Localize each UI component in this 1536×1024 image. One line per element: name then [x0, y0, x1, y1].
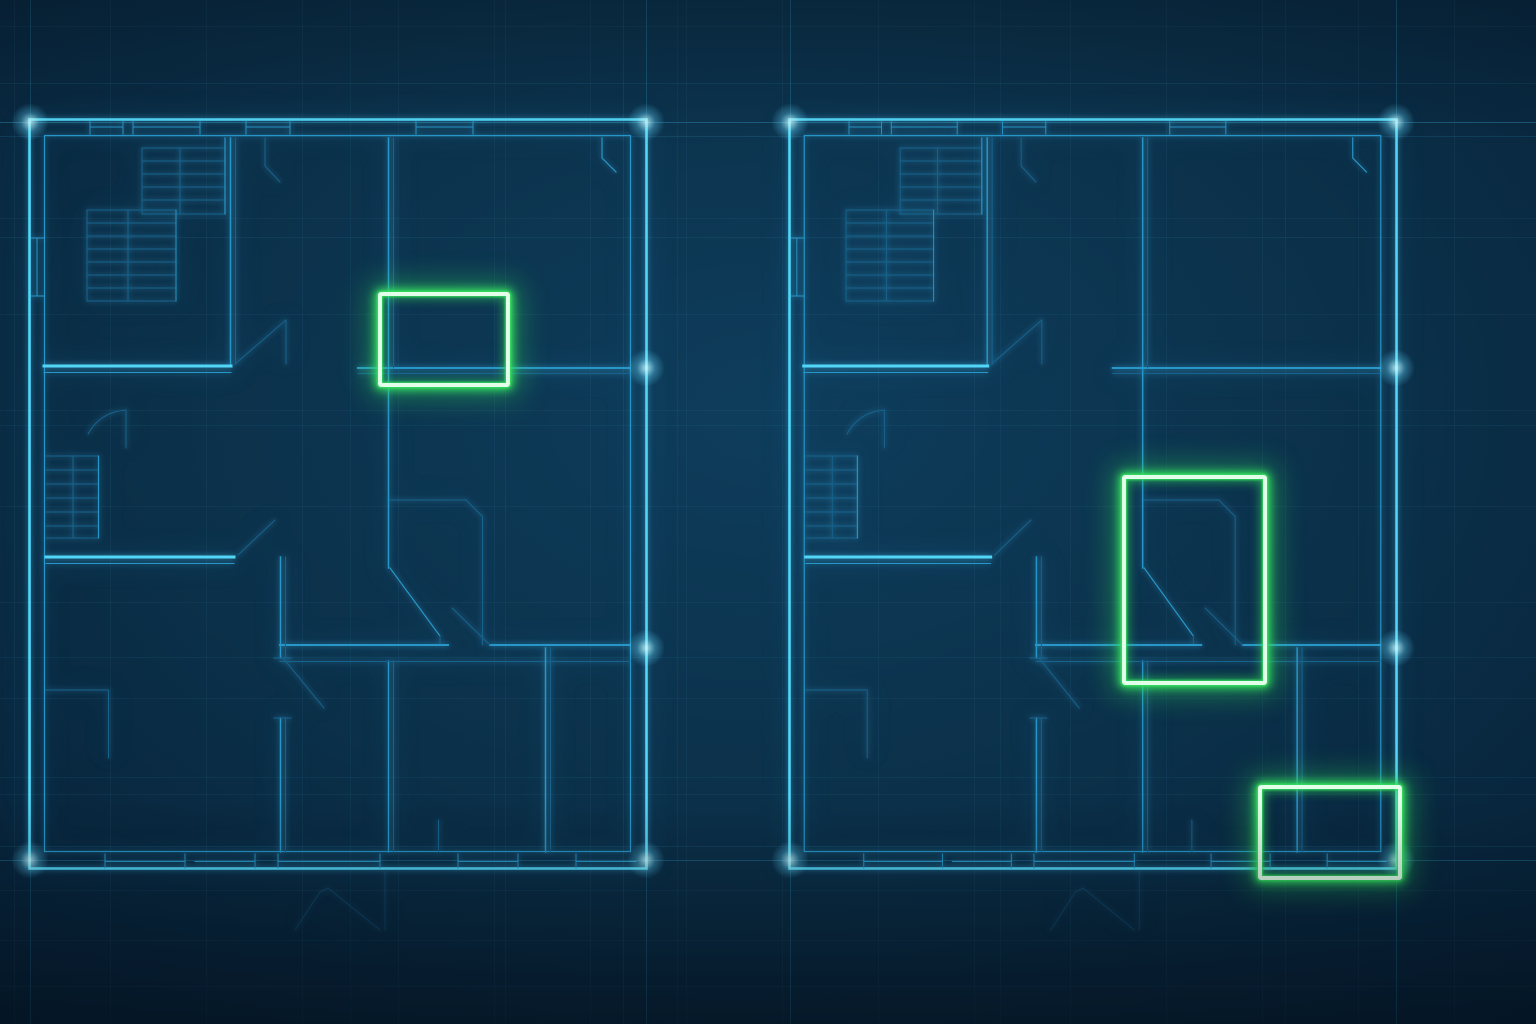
highlight-rect-right-room-large[interactable] — [1122, 475, 1267, 685]
blueprint-canvas — [0, 0, 1536, 1024]
construction-line-horizontal — [0, 83, 1536, 84]
construction-line-vertical — [677, 0, 678, 1024]
construction-line-horizontal — [0, 940, 1536, 941]
highlight-rect-left-room[interactable] — [378, 292, 510, 387]
highlight-rect-right-room-small[interactable] — [1258, 785, 1402, 880]
floorplan-right — [788, 118, 1398, 870]
floorplan-left — [28, 118, 648, 870]
